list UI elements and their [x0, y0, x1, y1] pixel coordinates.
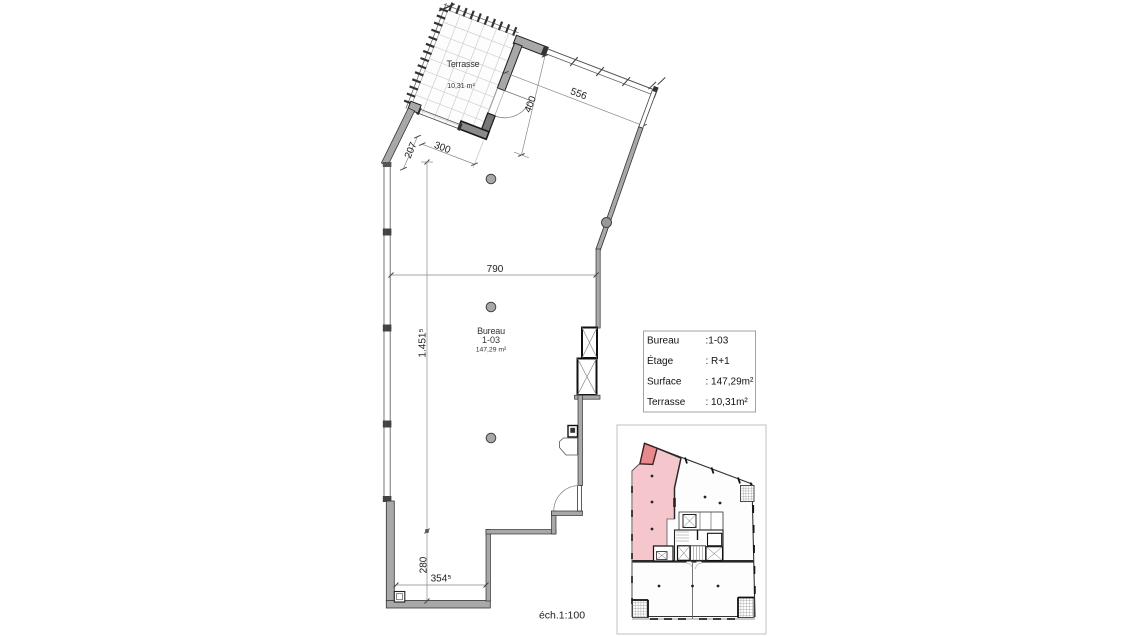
svg-text:790: 790: [487, 264, 504, 275]
svg-text:Terrasse: Terrasse: [447, 59, 480, 69]
svg-text:354⁵: 354⁵: [431, 574, 452, 585]
svg-text:éch.1:100: éch.1:100: [539, 610, 585, 622]
svg-text::1-03: :1-03: [706, 336, 729, 347]
svg-text:280: 280: [418, 556, 429, 573]
svg-text:10,31 m²: 10,31 m²: [447, 83, 475, 90]
svg-text:: 10,31m²: : 10,31m²: [706, 397, 749, 408]
svg-text:: 147,29m²: : 147,29m²: [706, 377, 754, 388]
svg-text:1-03: 1-03: [482, 335, 500, 345]
svg-text:147,29 m²: 147,29 m²: [476, 347, 507, 354]
svg-text:Bureau: Bureau: [647, 336, 679, 347]
svg-text:Étage: Étage: [647, 354, 674, 367]
svg-text:Surface: Surface: [647, 377, 682, 388]
svg-text:Terrasse: Terrasse: [647, 397, 686, 408]
svg-text:: R+1: : R+1: [706, 356, 731, 367]
svg-text:1.451⁵: 1.451⁵: [418, 328, 429, 357]
